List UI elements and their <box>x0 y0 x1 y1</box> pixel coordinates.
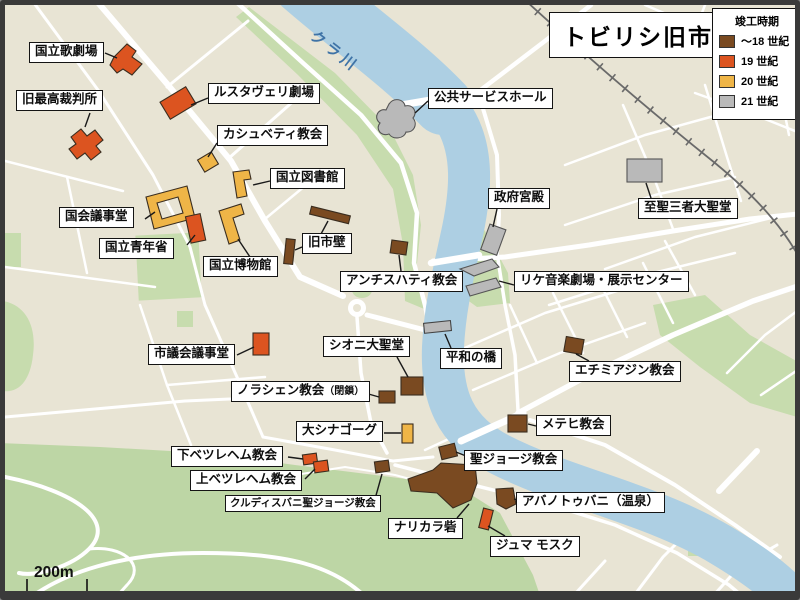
map-canvas <box>5 5 800 600</box>
legend-swatch-18c <box>719 35 735 48</box>
park-left-small <box>5 233 21 267</box>
poi-label-narikala-fortress: ナリカラ砦 <box>388 518 463 539</box>
poi-label-public-service-hall: 公共サービスホール <box>428 88 553 109</box>
poi-label-juma-mosque: ジュマ モスク <box>490 536 580 557</box>
scale-label: 200m <box>34 564 74 582</box>
poi-label-kashveti-church: カシュベティ教会 <box>217 125 328 146</box>
park-small-square <box>177 311 193 327</box>
building-great-synagogue <box>402 424 413 443</box>
poi-label-echmiadzin-church: エチミアジン教会 <box>569 361 681 382</box>
legend-row-21c: 21 世紀 <box>719 93 795 109</box>
building-old-city-wall-2 <box>284 239 296 265</box>
poi-label-great-synagogue: 大シナゴーグ <box>296 421 383 442</box>
poi-label-opera-house: 国立歌劇場 <box>29 42 104 63</box>
poi-label-norashen-church: ノラシェン教会（閉鎖） <box>231 381 370 402</box>
poi-label-peace-bridge: 平和の橋 <box>440 348 502 369</box>
building-peace-bridge <box>424 321 452 334</box>
building-metekhi-church <box>508 415 527 432</box>
map-frame: トビリシ旧市街 竣工時期 ～18 世紀 19 世紀 20 世紀 21 世紀 クラ… <box>0 0 800 600</box>
building-anchiskhati-church <box>390 240 408 255</box>
poi-label-anchiskhati-church: アンチスハティ教会 <box>340 271 463 292</box>
poi-label-trinity-cathedral: 至聖三者大聖堂 <box>638 198 738 219</box>
legend-swatch-20c <box>719 75 735 88</box>
poi-label-rustaveli-theatre: ルスタヴェリ劇場 <box>208 83 320 104</box>
legend-row-18c: ～18 世紀 <box>719 33 795 49</box>
building-kldisubani-st-george-church <box>374 460 389 473</box>
legend: 竣工時期 ～18 世紀 19 世紀 20 世紀 21 世紀 <box>712 8 800 120</box>
building-echmiadzin-church <box>564 337 584 355</box>
poi-label-national-library: 国立図書館 <box>270 168 345 189</box>
poi-label-st-george-church: 聖ジョージ教会 <box>464 450 563 471</box>
building-norashen-church <box>379 391 395 403</box>
legend-swatch-19c <box>719 55 735 68</box>
poi-label-kldisubani-st-george-church: クルディスバニ聖ジョージ教会 <box>225 495 381 512</box>
building-trinity-cathedral <box>627 159 662 182</box>
building-city-assembly <box>253 333 269 355</box>
poi-label-government-palace: 政府宮殿 <box>488 188 550 209</box>
legend-title: 竣工時期 <box>719 13 795 29</box>
poi-label-city-assembly: 市議会議事堂 <box>148 344 235 365</box>
poi-label-parliament: 国会議事堂 <box>59 207 134 228</box>
poi-label-abanotubani: アバノトゥバニ（温泉） <box>516 492 665 513</box>
poi-label-sioni-cathedral: シオニ大聖堂 <box>323 336 410 357</box>
poi-label-metekhi-church: メテヒ教会 <box>536 415 611 436</box>
legend-row-20c: 20 世紀 <box>719 73 795 89</box>
building-sioni-cathedral <box>401 377 423 395</box>
legend-row-19c: 19 世紀 <box>719 53 795 69</box>
poi-label-rike-concert-hall: リケ音楽劇場・展示センター <box>514 271 689 292</box>
poi-label-supreme-court-former: 旧最高裁判所 <box>16 90 103 111</box>
poi-label-lower-bethlehem-church: 下ベツレヘム教会 <box>171 446 283 467</box>
poi-label-old-city-wall: 旧市壁 <box>302 233 352 254</box>
poi-label-national-museum: 国立博物館 <box>203 256 278 277</box>
building-upper-bethlehem-church <box>313 460 328 473</box>
legend-swatch-21c <box>719 95 735 108</box>
poi-label-youth-ministry: 国立青年省 <box>99 238 174 259</box>
poi-label-upper-bethlehem-church: 上ベツレヘム教会 <box>190 470 302 491</box>
